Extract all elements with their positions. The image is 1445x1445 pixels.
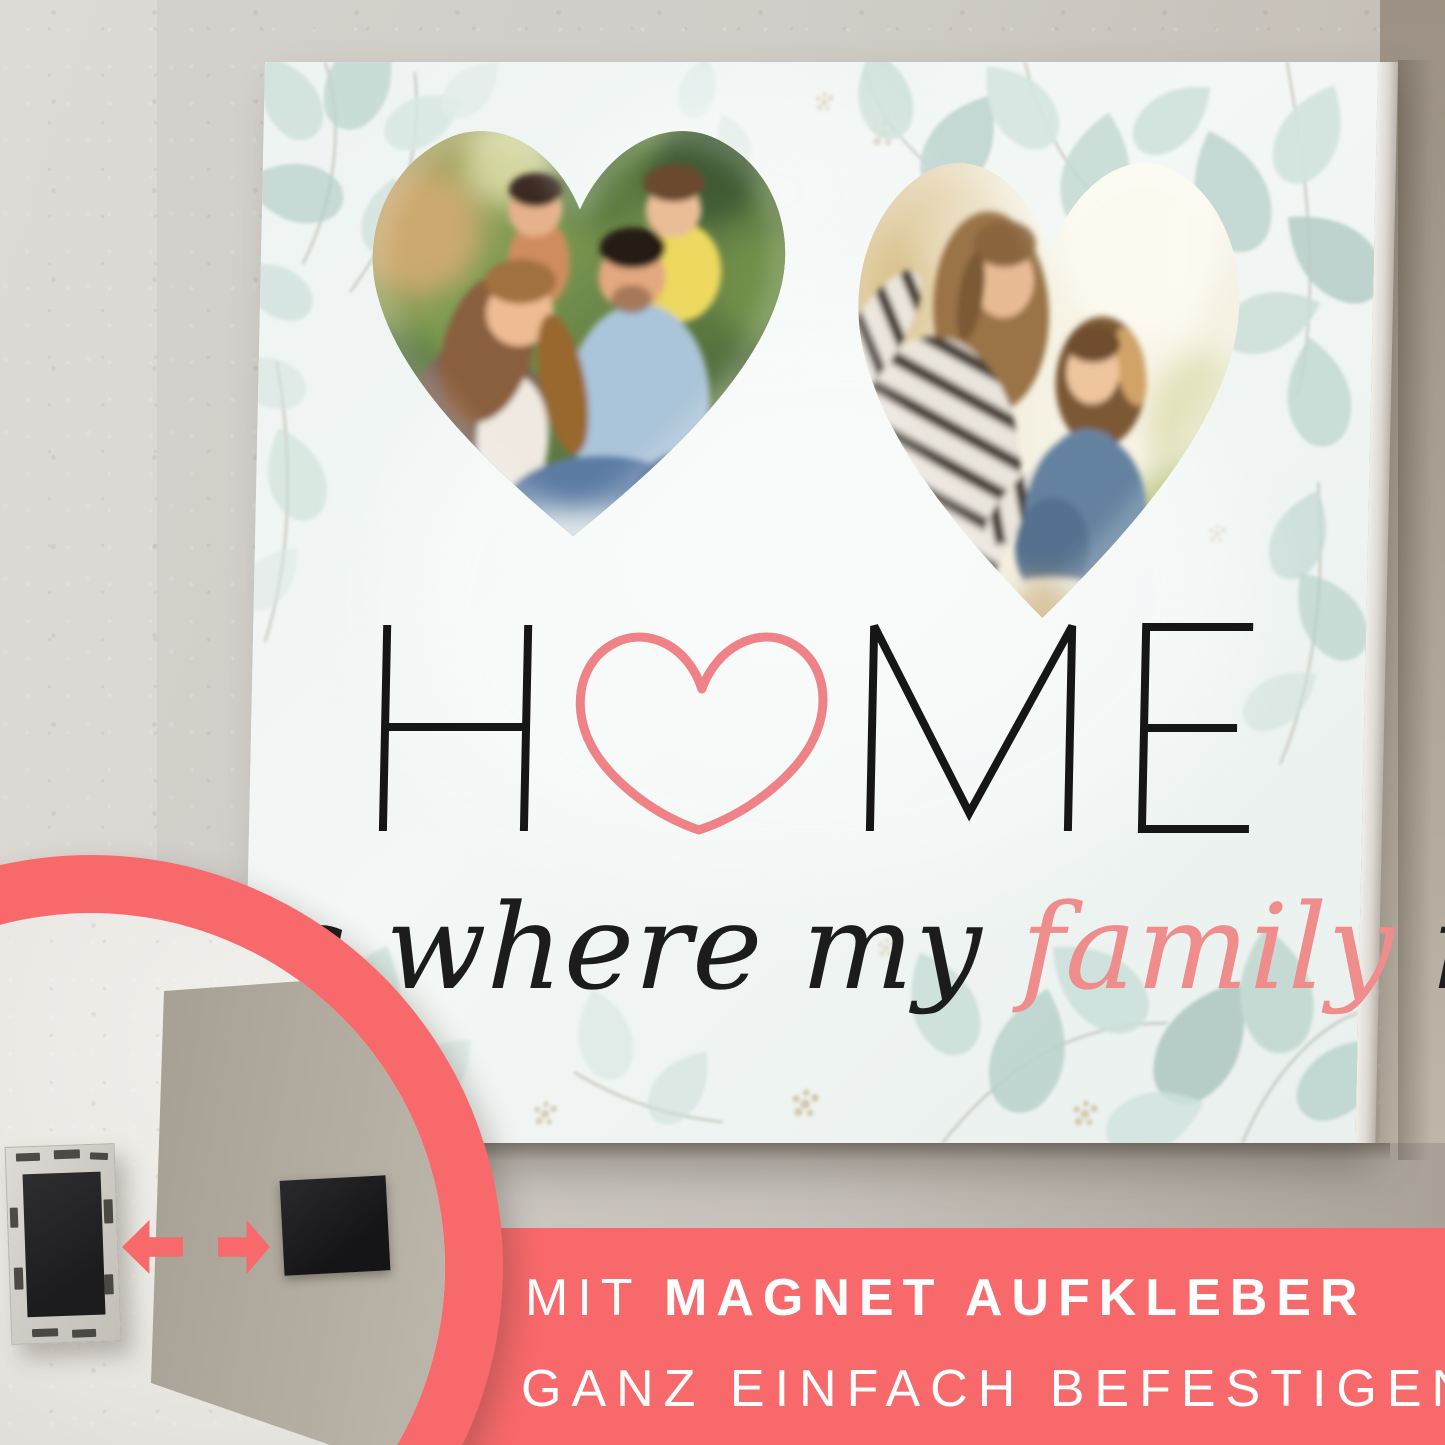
panel-magnet-square xyxy=(280,1175,391,1275)
plate-logo-mark xyxy=(103,1199,113,1223)
wall-magnet-plate xyxy=(5,1143,122,1345)
banner-line1-regular: MIT xyxy=(525,1269,664,1327)
tagline-family: family xyxy=(1019,878,1396,1016)
plate-logo-mark xyxy=(72,1329,96,1338)
banner-line1-bold: MAGNET AUFKLEBER xyxy=(664,1269,1367,1327)
plate-logo-mark xyxy=(32,1328,58,1337)
plate-logo-mark xyxy=(10,1208,19,1228)
plate-magnet-square xyxy=(23,1172,106,1318)
banner-line-1: MIT MAGNET AUFKLEBER xyxy=(525,1268,1367,1328)
plate-logo-mark xyxy=(16,1153,40,1162)
banner-line-2: GANZ EINFACH BEFESTIGEN xyxy=(521,1359,1445,1419)
plate-logo-mark xyxy=(54,1149,80,1159)
plate-logo-mark xyxy=(104,1274,114,1294)
product-photo: is where my family is MIT MAGNET AUFKLEB… xyxy=(0,0,1445,1445)
heart-photo-family xyxy=(350,116,805,545)
plate-logo-mark xyxy=(14,1267,24,1289)
home-wordmark xyxy=(377,623,1256,833)
letter-e xyxy=(1142,627,1253,829)
heart-photo-mother-daughter xyxy=(836,146,1258,628)
letter-m xyxy=(870,626,1072,831)
canvas-cast-shadow xyxy=(1398,60,1432,1160)
heart-o-icon xyxy=(578,637,825,830)
magnet-inset-photo xyxy=(0,913,445,1445)
letter-h xyxy=(383,625,528,831)
plate-logo-mark xyxy=(90,1152,108,1160)
